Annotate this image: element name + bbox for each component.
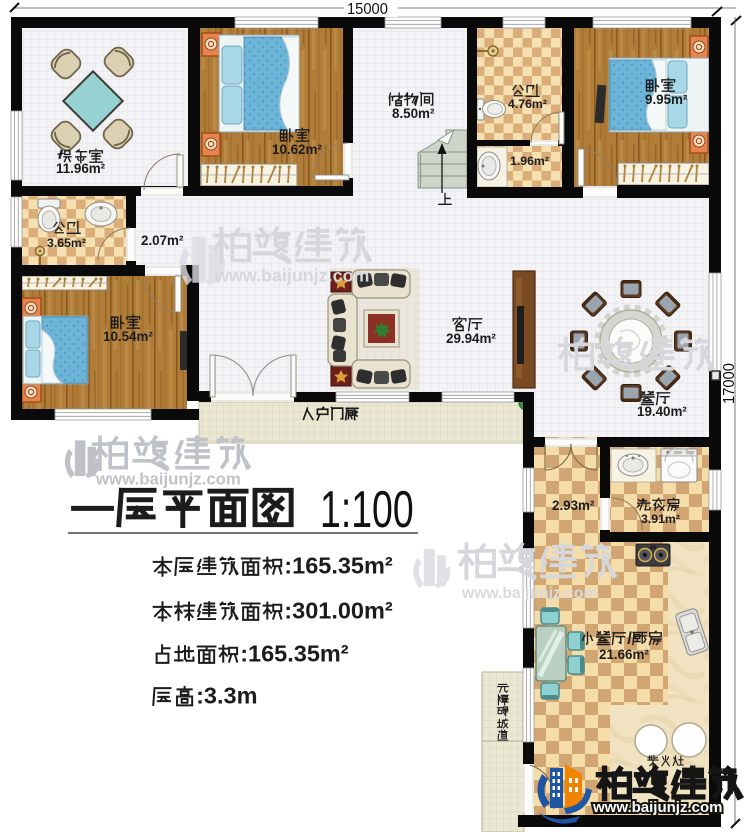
- svg-text:1.96m²: 1.96m²: [510, 154, 549, 168]
- svg-text:10.62m²: 10.62m²: [272, 142, 322, 157]
- svg-text:3.65m²: 3.65m²: [47, 236, 86, 250]
- svg-text:/: /: [627, 629, 632, 648]
- svg-text:15000: 15000: [347, 0, 388, 18]
- svg-text:3.91m²: 3.91m²: [641, 512, 680, 526]
- svg-text:10.54m²: 10.54m²: [103, 329, 153, 344]
- svg-text:2.07m²: 2.07m²: [141, 233, 184, 248]
- svg-text::165.35m²: :165.35m²: [240, 641, 349, 667]
- svg-text:2.93m²: 2.93m²: [552, 498, 595, 513]
- svg-text:1:100: 1:100: [320, 480, 414, 539]
- svg-text:4.76m²: 4.76m²: [508, 97, 547, 111]
- svg-text:www.baijunjz.com: www.baijunjz.com: [214, 265, 369, 285]
- svg-text::3.3m: :3.3m: [196, 683, 257, 709]
- svg-text::165.35m²: :165.35m²: [284, 553, 393, 579]
- svg-text:17000: 17000: [720, 363, 738, 404]
- svg-text:8.50m²: 8.50m²: [392, 106, 435, 121]
- svg-text:www.baijunjz.com: www.baijunjz.com: [592, 799, 722, 816]
- svg-text:9.95m²: 9.95m²: [645, 92, 688, 107]
- svg-text:19.40m²: 19.40m²: [637, 404, 687, 419]
- svg-text:21.66m²: 21.66m²: [599, 647, 649, 662]
- svg-text:11.96m²: 11.96m²: [56, 161, 106, 176]
- svg-text:www.baijunjz.com: www.baijunjz.com: [461, 585, 597, 602]
- svg-text:29.94m²: 29.94m²: [446, 331, 496, 346]
- svg-text:www.baijunjz.com: www.baijunjz.com: [95, 470, 241, 489]
- svg-text::301.00m²: :301.00m²: [284, 598, 393, 624]
